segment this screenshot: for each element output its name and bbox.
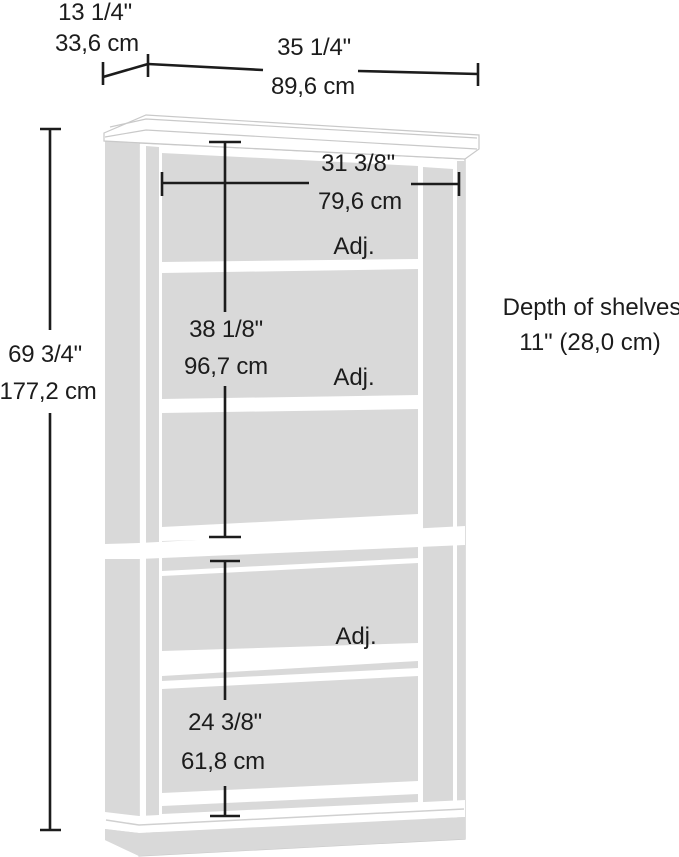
top-width-inches-label: 35 1/4" [277, 36, 351, 60]
top-depth-metric-label: 33,6 cm [55, 32, 139, 56]
top-width-metric-label: 89,6 cm [271, 75, 355, 99]
top-depth-inches-label: 13 1/4" [58, 1, 132, 25]
shelf-depth-note-line1: Depth of shelves [503, 296, 679, 320]
upper-height-inches-label: 38 1/8" [189, 318, 263, 342]
adjustable-shelf-label-2: Adj. [333, 366, 374, 390]
dim-line-overall-height [40, 129, 61, 830]
adjustable-shelf-label-1: Adj. [333, 235, 374, 259]
bookcase-drawing [0, 0, 679, 857]
lower-height-metric-label: 61,8 cm [181, 750, 265, 774]
overall-height-metric-label: 177,2 cm [0, 380, 97, 404]
right-stile [423, 167, 453, 820]
shelf-depth-note-line2: 11" (28,0 cm) [519, 331, 660, 355]
left-stile [146, 146, 159, 836]
lower-height-inches-label: 24 3/8" [188, 711, 262, 735]
upper-height-metric-label: 96,7 cm [184, 355, 268, 379]
left-side-panel [105, 139, 139, 856]
dim-line-top-depth [103, 54, 148, 85]
inner-width-metric-label: 79,6 cm [318, 190, 402, 214]
adjustable-shelf-label-3: Adj. [335, 625, 376, 649]
dimension-diagram: 13 1/4" 33,6 cm 35 1/4" 89,6 cm 31 3/8" … [0, 0, 679, 857]
overall-height-inches-label: 69 3/4" [8, 343, 82, 367]
bookcase-body [104, 115, 479, 856]
inner-width-inches-label: 31 3/8" [321, 152, 395, 176]
right-edge-strip [457, 161, 465, 819]
